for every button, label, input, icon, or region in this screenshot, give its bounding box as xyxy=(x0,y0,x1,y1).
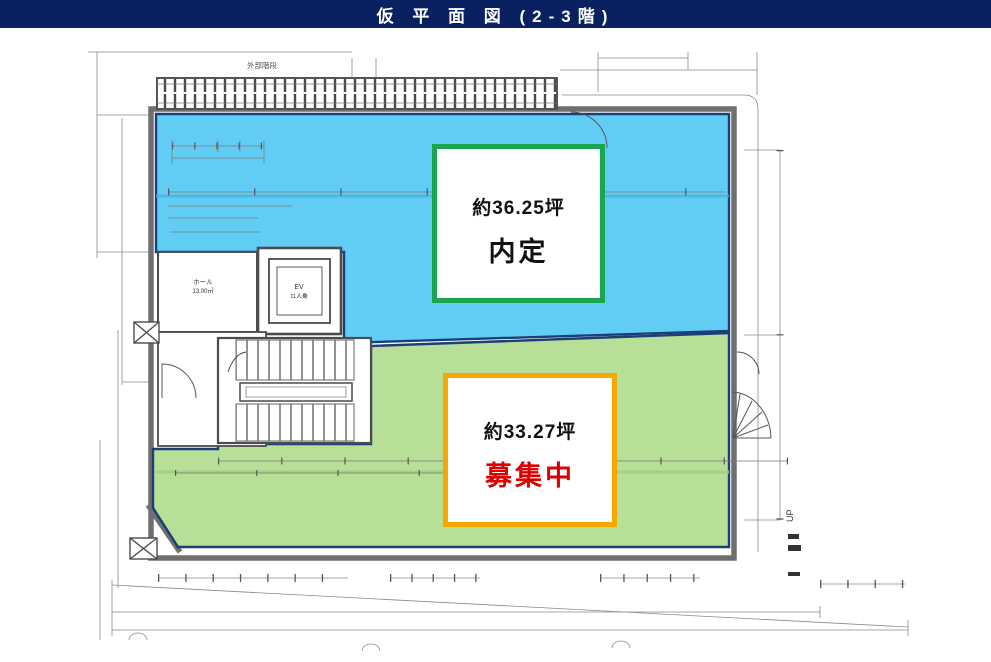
external-stair-label: 外部階段 xyxy=(247,60,277,70)
reserved-zone-label-box: 約36.25坪 内定 xyxy=(432,144,605,303)
elevator-capacity-label: 11人乗 xyxy=(290,293,308,300)
title-bar: 仮 平 面 図 (2-3階) xyxy=(0,0,991,28)
bottom-dimensions xyxy=(112,578,908,651)
vacant-status: 募集中 xyxy=(485,454,575,493)
page-title: 仮 平 面 図 (2-3階) xyxy=(377,2,615,27)
right-margin-markers: UP xyxy=(785,509,801,576)
internal-staircase xyxy=(218,338,371,443)
vacant-area-size: 約33.27坪 xyxy=(484,417,577,444)
floorplan-flyer: 仮 平 面 図 (2-3階) xyxy=(0,0,991,662)
floor-plan-drawing: 外部階段 ホール 13.00㎡ EV 11人乗 xyxy=(0,0,991,662)
corner-shaft xyxy=(130,538,157,559)
hall-area-label: 13.00㎡ xyxy=(192,287,213,295)
grid-bubble xyxy=(129,633,147,640)
reserved-status: 内定 xyxy=(489,230,549,269)
door-arc xyxy=(737,352,759,374)
external-spiral-stair xyxy=(733,352,771,438)
grid-bubble xyxy=(612,641,630,648)
elevator-shaft: EV 11人乗 xyxy=(258,248,341,334)
up-label: UP xyxy=(785,509,795,522)
elevator-label: EV xyxy=(294,284,304,291)
hall-label: ホール xyxy=(193,278,213,286)
reserved-area-size: 約36.25坪 xyxy=(472,193,565,220)
vacant-zone-label-box: 約33.27坪 募集中 xyxy=(443,373,617,527)
pipe-shaft xyxy=(134,322,159,343)
grid-bubble xyxy=(362,644,380,651)
